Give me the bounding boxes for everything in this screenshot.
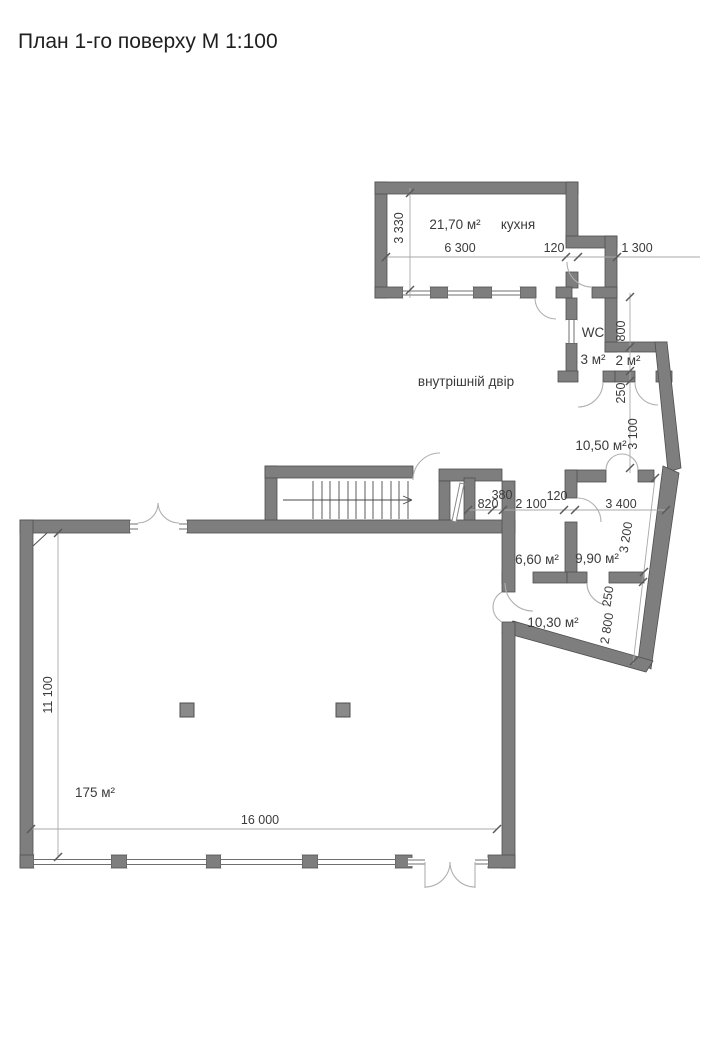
room-label-990: 9,90 м² [575,551,619,566]
dim-room-1030-height: 2 800 [598,612,617,645]
stairs [283,481,412,519]
floor-plan-page: План 1-го поверху М 1:100 [0,0,719,1062]
door-wc [578,382,603,407]
dim-kitchen-door: 120 [544,241,565,255]
room-label-1050: 10,50 м² [575,438,627,453]
door-hall-right-leaf [158,503,179,523]
dim-kitchen-height: 3 330 [392,212,406,243]
dim-slant-wall: 3 200 [617,521,636,554]
room-label-hall-area: 175 м² [75,785,116,800]
dim-wall-bottom: 250 [600,585,617,608]
room-label-wc-area: 3 м² [580,352,606,367]
exit-door-left-leaf [425,862,450,887]
dim-wall-top: 250 [614,383,628,404]
dim-closet-height: 800 [614,321,628,342]
closet-door-leaf [452,483,464,522]
dim-hall-width: 16 000 [241,813,279,827]
dim-kitchen-width: 6 300 [444,241,475,255]
dim-hallway-width: 3 400 [605,497,636,511]
room-label-1030: 10,30 м² [527,615,579,630]
dim-annex-width: 1 300 [621,241,652,255]
exit-door-right-leaf [450,862,475,887]
dim-corridor-width: 2 100 [515,497,546,511]
room-label-kitchen-area: 21,70 м² [429,217,481,232]
room-label-660: 6,60 м² [515,552,559,567]
column [336,703,350,717]
room-label-wc: WC [582,325,605,340]
column [180,703,194,717]
room-labels: 21,70 м² кухня внутрішній двір WC 3 м² 2… [75,217,641,800]
door-kitchen-courtyard [535,298,556,319]
room-label-closet-area: 2 м² [615,353,641,368]
door-hall-1030 [493,592,502,622]
room-label-courtyard: внутрішній двір [418,374,514,389]
dim-room-1050-height: 3 100 [626,418,640,449]
page-title: План 1-го поверху М 1:100 [18,30,278,53]
dim-partition: 120 [547,489,568,503]
stair-arrow-icon [403,496,412,500]
door-stairhall [413,453,440,480]
floor-plan-drawing: План 1-го поверху М 1:100 [0,0,719,1062]
columns [180,703,350,717]
door-hall-left-leaf [138,503,158,523]
door-closet [635,382,658,405]
dim-hall-depth: 11 100 [41,676,55,713]
door-1050-left-leaf [606,454,622,470]
dim-closet-door: 820 [478,497,499,511]
room-label-kitchen-name: кухня [501,217,535,232]
